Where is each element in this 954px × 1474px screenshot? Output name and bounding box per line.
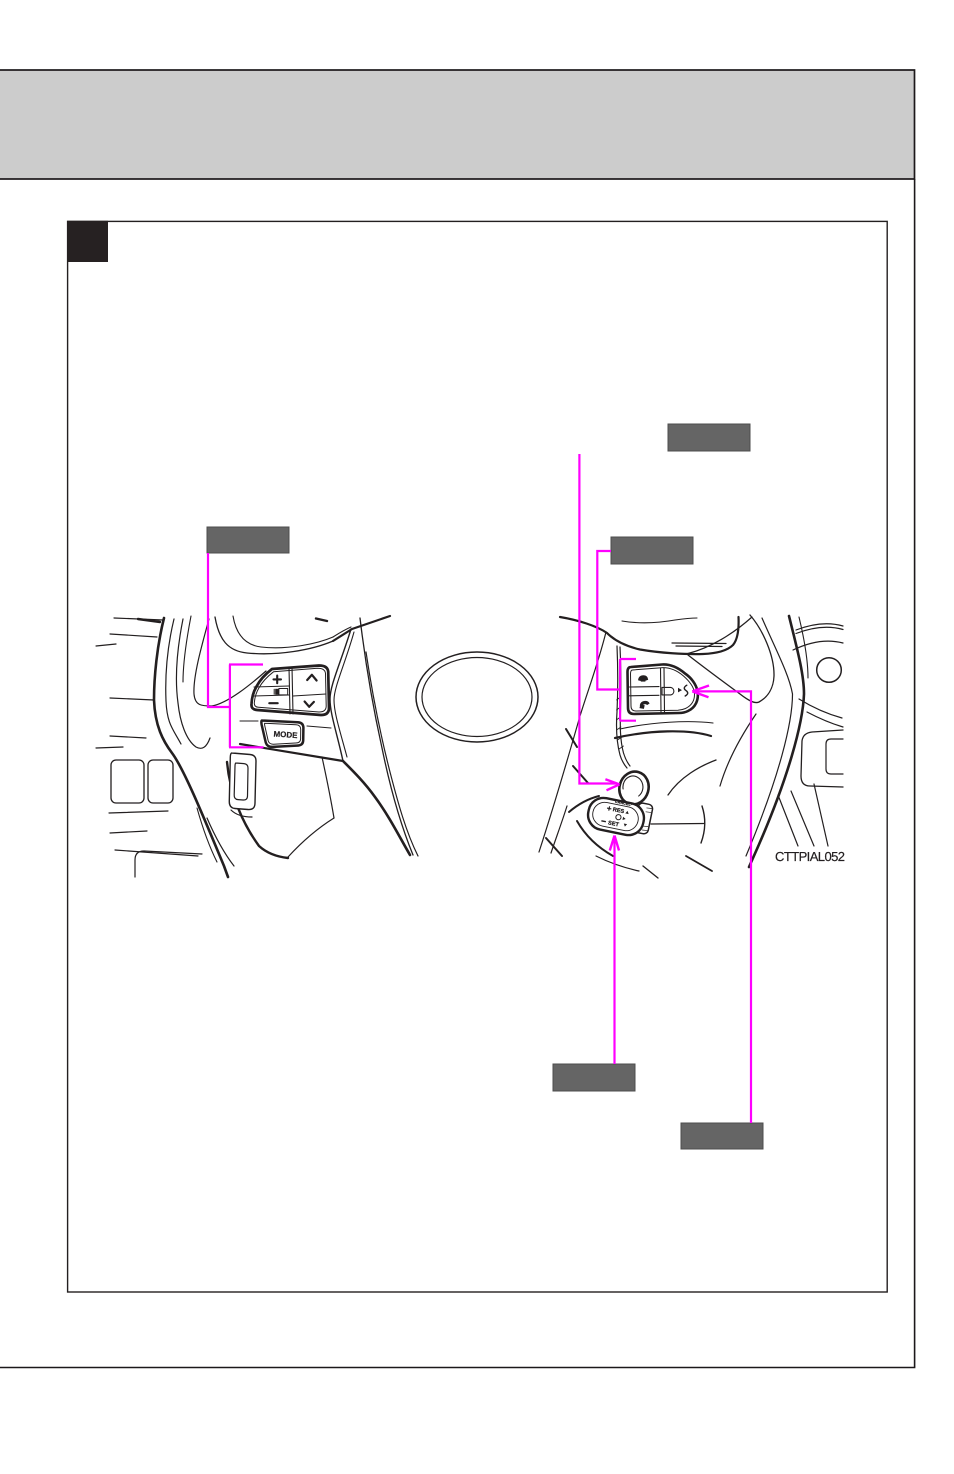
svg-text:CTTPIAL052: CTTPIAL052 xyxy=(775,849,845,864)
svg-text:MODE: MODE xyxy=(273,729,298,740)
